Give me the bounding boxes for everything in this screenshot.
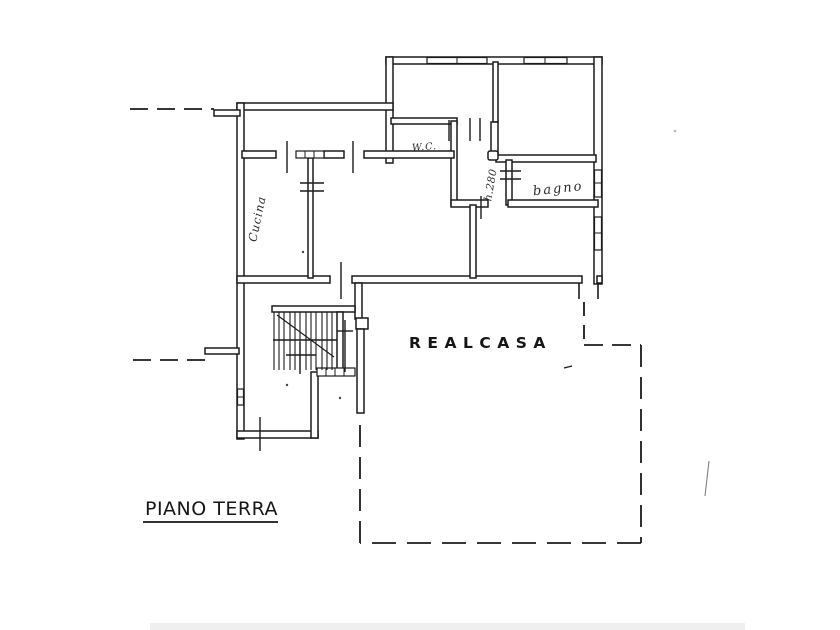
door-marks [260, 118, 521, 451]
watermark-realcasa: REALCASA [409, 334, 552, 352]
window-right-lower [595, 217, 602, 250]
room-label-cucina: Cucina [245, 195, 268, 243]
wall-bottom-a [237, 276, 330, 283]
wall-bottom-c [597, 276, 602, 283]
wall-corridor-bottom-a [242, 151, 276, 158]
wall-wing-right-upper [355, 283, 362, 319]
speck-3 [339, 397, 341, 399]
wall-bottom-b [352, 276, 582, 283]
window-top-2 [524, 58, 567, 64]
speck-4 [674, 130, 677, 133]
property-boundary-dashed [130, 109, 641, 543]
window-right-bagno [595, 170, 602, 197]
speck-1 [302, 251, 304, 253]
wall-shaft-left [451, 121, 457, 205]
floor-plan-page: W.C. bagno h.280 Cucina REALCASA PIANO T… [0, 0, 840, 630]
wall-wing-bottom [237, 431, 318, 438]
door-pivot-square [488, 151, 498, 160]
small-dash-mark [564, 366, 572, 368]
wall-stub-lower-left [205, 348, 239, 354]
pen-mark [705, 461, 709, 496]
annotations: REALCASA PIANO TERRA [143, 334, 552, 522]
wall-wc-top [391, 118, 457, 124]
wall-corridor-bottom-b [324, 151, 344, 158]
wall-wing-right-lower [357, 329, 364, 413]
ceiling-height-label: h.280 [482, 168, 499, 202]
wall-stair-top [272, 306, 355, 312]
floor-title: PIANO TERRA [145, 498, 278, 520]
window-corridor-glass [296, 151, 324, 158]
scan-edge-band [150, 623, 745, 630]
window-stair-landing [317, 368, 355, 376]
wall-stub-upper-left [214, 110, 240, 116]
exterior-walls [205, 57, 602, 439]
wall-room-divider-right [470, 205, 476, 278]
wall-bagno-bottom-b [508, 200, 598, 207]
wall-kitchen-right [308, 158, 313, 278]
speck-2 [286, 384, 288, 386]
floor-plan-canvas: W.C. bagno h.280 Cucina REALCASA PIANO T… [0, 0, 840, 630]
wall-corridor-bottom-c [364, 151, 454, 158]
wall-bagno-left [506, 160, 512, 205]
window-left-wing [238, 389, 244, 405]
wall-pilaster [356, 318, 368, 329]
wall-stair-right [337, 312, 343, 370]
room-label-bagno: bagno [532, 179, 584, 199]
wall-corridor-top [237, 103, 393, 110]
wall-bedroom-divider [493, 62, 498, 122]
wall-atrio-right [311, 372, 318, 438]
room-label-wc: W.C. [412, 141, 438, 154]
window-top-1 [427, 58, 487, 64]
